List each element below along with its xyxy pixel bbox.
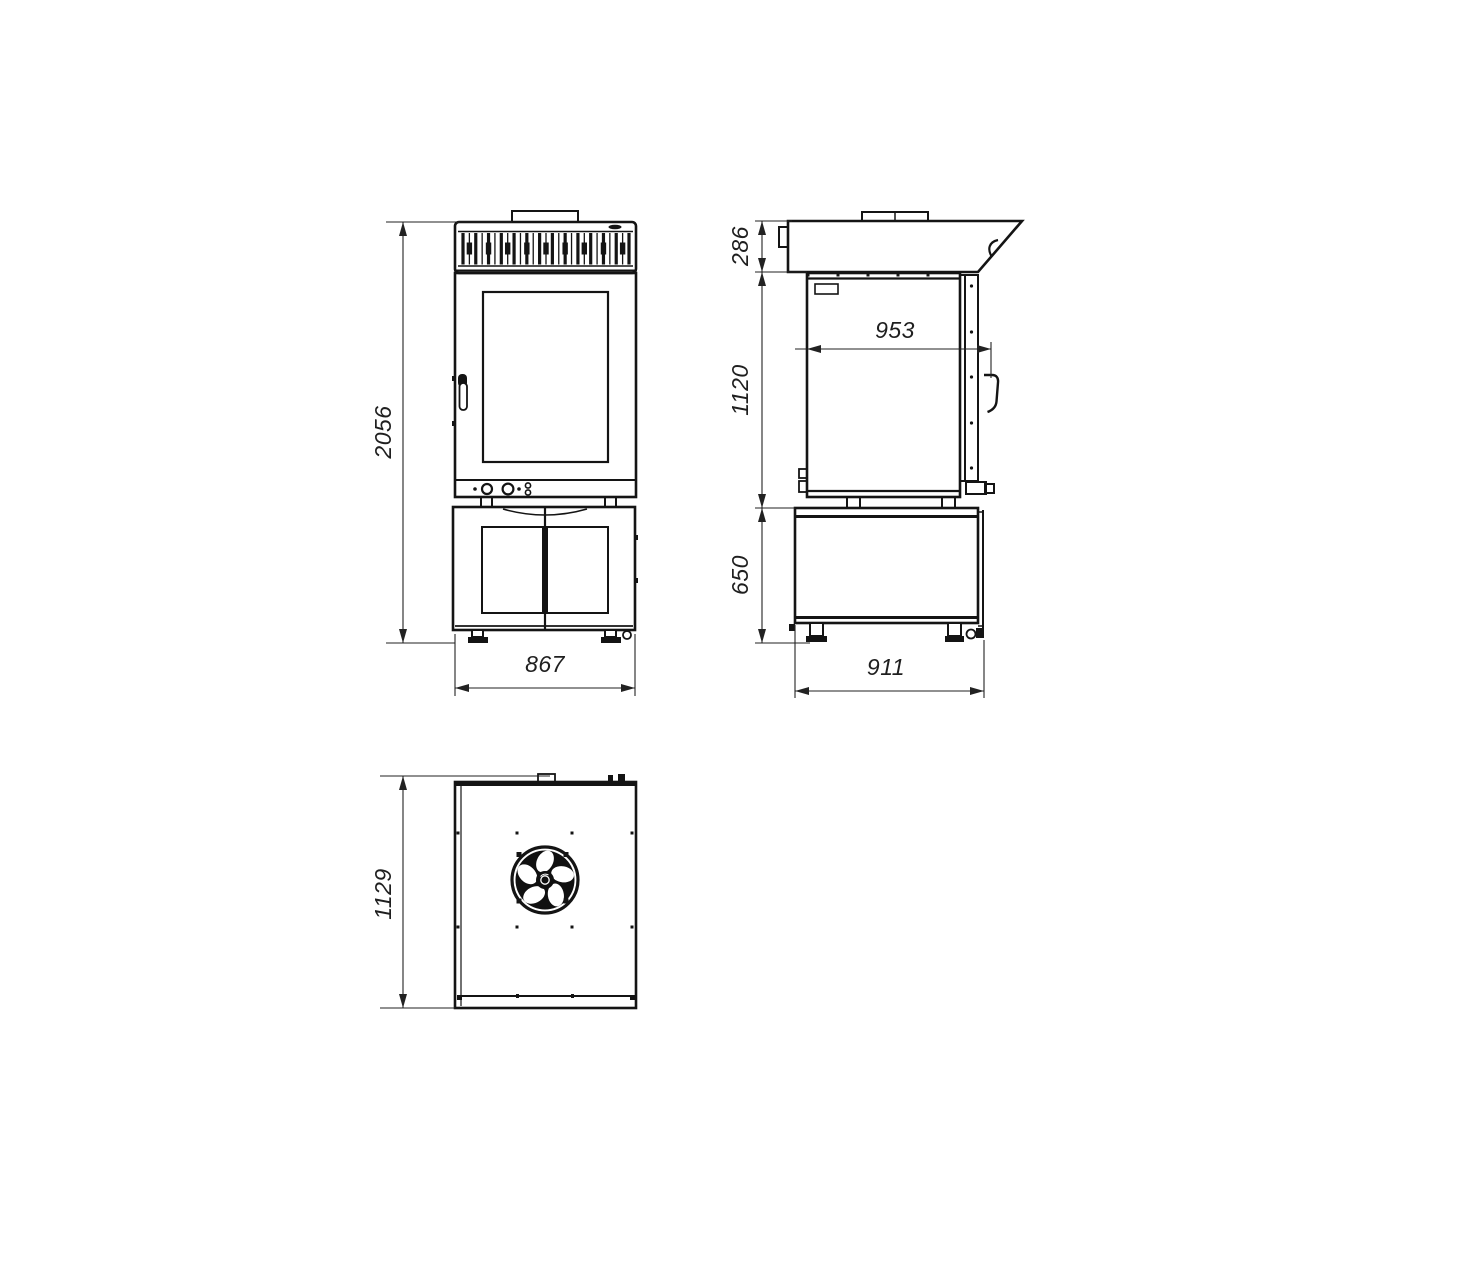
ventilation-grille bbox=[455, 222, 636, 273]
door-hinge-bottom bbox=[452, 421, 456, 426]
stand-door-window-right bbox=[547, 527, 608, 613]
caster-side bbox=[967, 630, 976, 639]
door-handle bbox=[458, 374, 467, 410]
dim-label-top-depth: 1129 bbox=[370, 868, 396, 919]
indicator-dot-right bbox=[517, 487, 521, 491]
front-view bbox=[452, 211, 638, 643]
stand-side-foot-front bbox=[806, 623, 827, 642]
stand-side bbox=[789, 508, 984, 642]
technical-drawing-canvas: 2056 867 286 1120 650 bbox=[0, 0, 1467, 1284]
dim-label-front-height: 2056 bbox=[370, 405, 396, 459]
stand-front bbox=[453, 497, 638, 643]
dim-label-stand-height: 650 bbox=[727, 555, 753, 595]
dim-label-hood-height: 286 bbox=[727, 226, 753, 267]
dimension-side-heights: 286 1120 650 bbox=[727, 221, 810, 643]
hood-side bbox=[779, 212, 1022, 277]
control-knob-2 bbox=[503, 484, 514, 495]
dimension-front-height: 2056 bbox=[370, 222, 512, 643]
hood-tab bbox=[779, 227, 788, 247]
rear-panel-strip bbox=[457, 994, 635, 1000]
stand-foot-right bbox=[601, 630, 621, 643]
body-foot-front bbox=[847, 497, 860, 508]
stand-hinge-bottom bbox=[635, 578, 639, 583]
body-side bbox=[799, 273, 998, 508]
top-fitting-2 bbox=[618, 774, 625, 781]
dim-label-stand-depth: 911 bbox=[867, 654, 905, 680]
dim-label-body-depth: 953 bbox=[875, 317, 915, 343]
dim-label-body-height: 1120 bbox=[727, 364, 753, 415]
door-window bbox=[483, 292, 608, 462]
dim-label-front-width: 867 bbox=[525, 651, 566, 677]
stand-hinge-top bbox=[635, 535, 639, 540]
indicator-dot-left bbox=[473, 487, 477, 491]
top-view bbox=[455, 774, 636, 1008]
stand-door-window-left bbox=[482, 527, 543, 613]
control-panel bbox=[455, 480, 636, 495]
side-view bbox=[779, 212, 1022, 642]
top-fitting-1 bbox=[608, 775, 613, 781]
door-frame-side bbox=[960, 275, 978, 481]
latch-block bbox=[966, 482, 986, 494]
oven-foot-left bbox=[481, 497, 492, 507]
body-foot-rear bbox=[942, 497, 955, 508]
oven-foot-right bbox=[605, 497, 616, 507]
control-knob-1 bbox=[482, 484, 492, 494]
stand-corner-block bbox=[789, 624, 795, 631]
dimension-body-depth: 953 bbox=[795, 317, 991, 378]
fan-icon bbox=[512, 847, 578, 913]
grille-badge bbox=[609, 225, 622, 230]
oven-dimension-drawing: 2056 867 286 1120 650 bbox=[0, 0, 1467, 1284]
dimension-front-width: 867 bbox=[455, 634, 635, 696]
stand-foot-left bbox=[468, 630, 488, 643]
rating-plate bbox=[815, 284, 838, 294]
vent-duct bbox=[512, 211, 578, 222]
door-hinge-top bbox=[452, 376, 456, 381]
pilot-lamp-bottom bbox=[525, 490, 530, 495]
rear-bracket bbox=[976, 628, 984, 638]
caster-front bbox=[623, 631, 631, 639]
oven-door bbox=[452, 273, 636, 497]
grille-slats bbox=[463, 233, 629, 265]
dimensions: 2056 867 286 1120 650 bbox=[370, 221, 991, 1008]
pilot-lamp-top bbox=[525, 483, 530, 488]
door-handle-side bbox=[984, 375, 998, 412]
stand-side-foot-rear bbox=[945, 623, 964, 642]
